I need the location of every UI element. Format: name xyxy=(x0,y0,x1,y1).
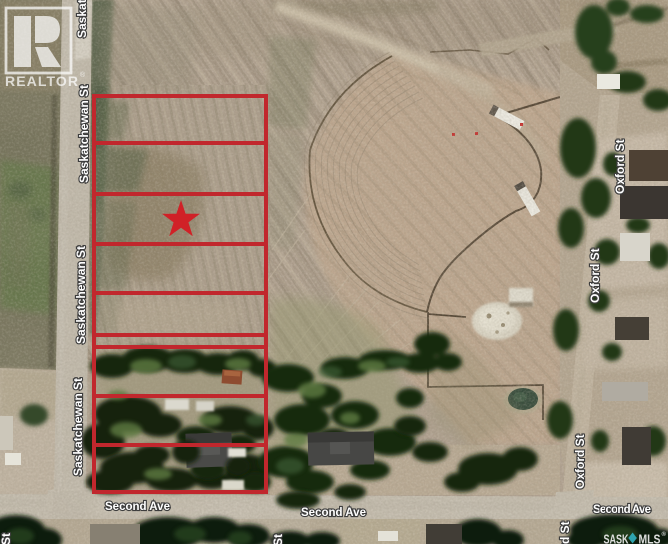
svg-text:®: ® xyxy=(80,71,86,79)
svg-text:Saskatchewan St: Saskatchewan St xyxy=(75,0,89,38)
svg-text:®: ® xyxy=(662,531,667,538)
svg-text:Second Ave: Second Ave xyxy=(593,504,651,516)
svg-text:Second Ave: Second Ave xyxy=(301,507,366,519)
svg-text:REALTOR: REALTOR xyxy=(5,73,79,89)
svg-text:St: St xyxy=(0,533,13,544)
svg-text:Second Ave: Second Ave xyxy=(105,501,170,513)
svg-text:Oxford St: Oxford St xyxy=(558,521,572,544)
svg-text:Oxford St: Oxford St xyxy=(588,248,602,303)
svg-text:Oxford St: Oxford St xyxy=(573,434,587,489)
svg-text:Saskatchewan St: Saskatchewan St xyxy=(71,378,85,476)
svg-text:Saskatchewan St: Saskatchewan St xyxy=(77,85,91,183)
svg-text:St: St xyxy=(271,534,285,544)
svg-text:MLS: MLS xyxy=(639,532,661,544)
svg-text:Saskatchewan St: Saskatchewan St xyxy=(74,246,88,344)
svg-text:SASK: SASK xyxy=(604,532,629,544)
svg-text:Oxford St: Oxford St xyxy=(613,139,627,194)
